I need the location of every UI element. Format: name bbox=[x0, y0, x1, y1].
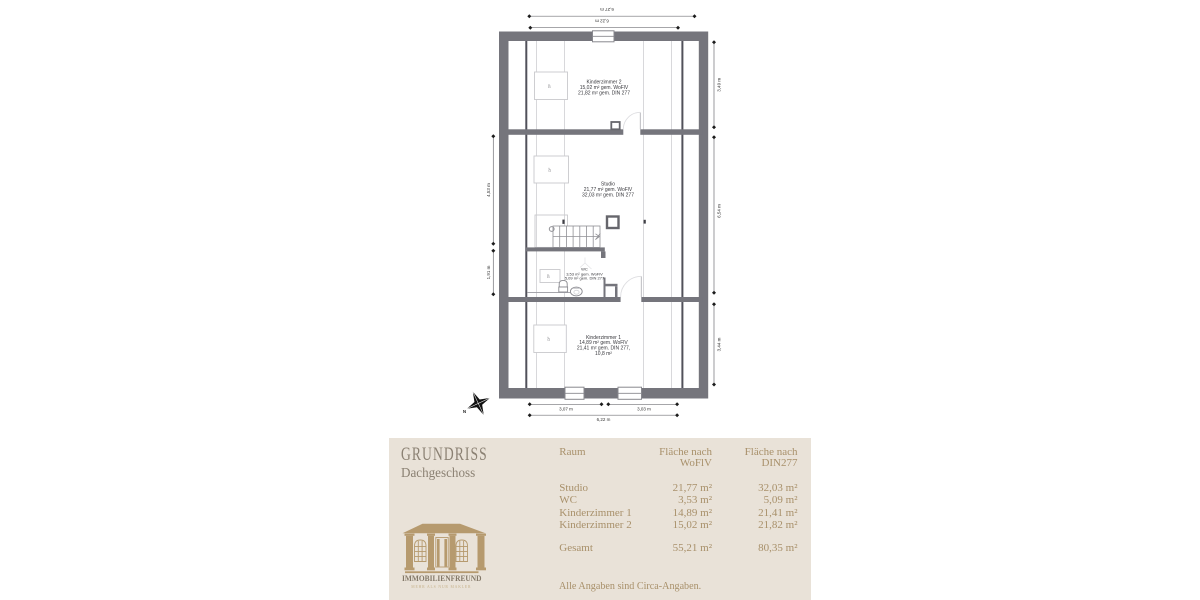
svg-text:3,49 m: 3,49 m bbox=[717, 78, 722, 92]
svg-text:3,03 m: 3,03 m bbox=[637, 406, 651, 411]
svg-text:DF: DF bbox=[547, 337, 551, 341]
svg-text:6,27 m: 6,27 m bbox=[600, 7, 614, 12]
svg-text:DF: DF bbox=[548, 84, 552, 88]
svg-text:10,8 m²: 10,8 m² bbox=[595, 351, 612, 357]
svg-text:5,09 m² gem. DIN 277: 5,09 m² gem. DIN 277 bbox=[565, 276, 605, 281]
svg-text:6,54 m: 6,54 m bbox=[717, 204, 722, 218]
svg-text:DF: DF bbox=[548, 168, 552, 172]
svg-text:3,07 m: 3,07 m bbox=[559, 406, 573, 411]
svg-text:6,22 m: 6,22 m bbox=[595, 19, 609, 24]
svg-text:32,03 m² gem. DIN 277: 32,03 m² gem. DIN 277 bbox=[582, 192, 634, 198]
svg-text:3,44 m: 3,44 m bbox=[717, 337, 722, 351]
svg-text:6,22 m: 6,22 m bbox=[597, 417, 611, 422]
svg-text:N: N bbox=[463, 409, 466, 414]
svg-text:1,91 m: 1,91 m bbox=[486, 265, 491, 279]
svg-text:21,82 m² gem. DIN 277: 21,82 m² gem. DIN 277 bbox=[578, 90, 630, 96]
svg-text:4,53 m: 4,53 m bbox=[486, 183, 491, 197]
svg-text:DF: DF bbox=[547, 274, 551, 278]
